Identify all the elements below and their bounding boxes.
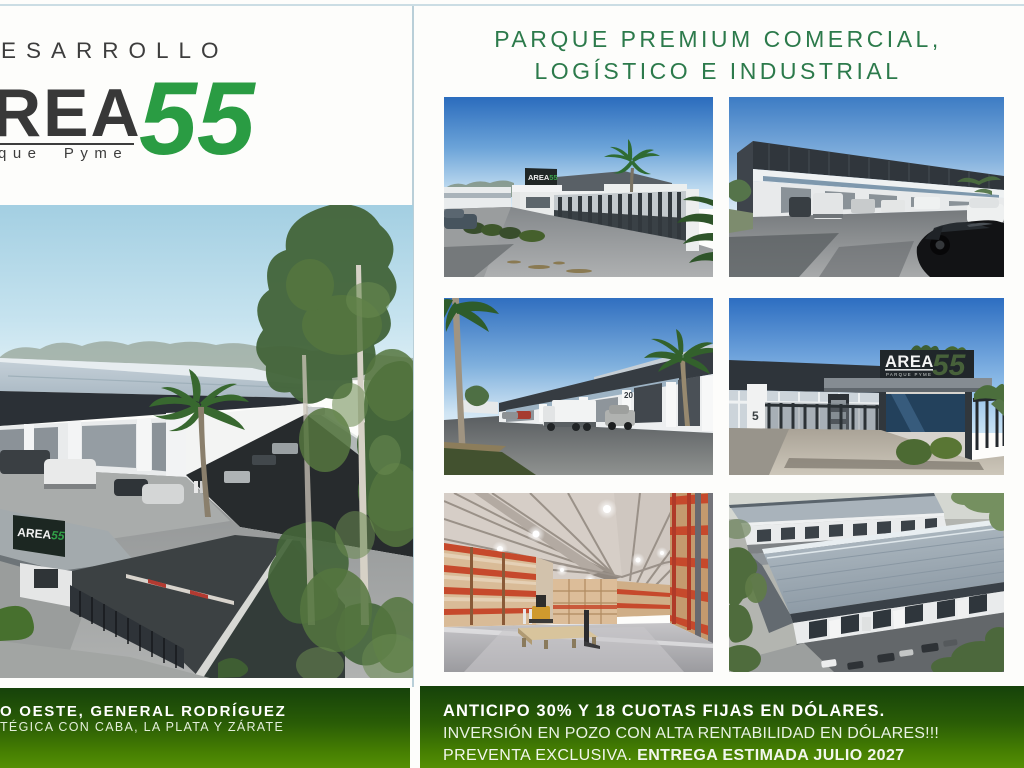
svg-text:55: 55 xyxy=(932,349,967,382)
svg-text:AREA: AREA xyxy=(885,353,934,371)
svg-text:PARQUE PYME: PARQUE PYME xyxy=(886,372,932,377)
svg-text:20: 20 xyxy=(624,391,633,400)
svg-text:AREA55: AREA55 xyxy=(528,173,558,182)
svg-text:5: 5 xyxy=(752,409,759,423)
